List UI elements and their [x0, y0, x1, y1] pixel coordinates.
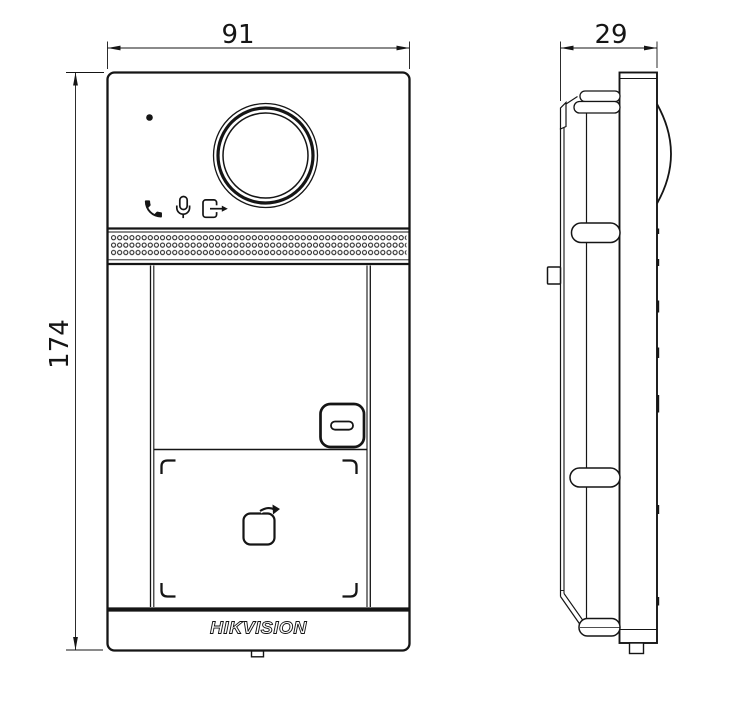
top-wedge	[561, 103, 567, 130]
brand-logo: HIKVISION	[210, 618, 307, 638]
dimension-drawing-page: HIKVISION	[0, 0, 748, 712]
lower-clip	[570, 468, 620, 487]
dimension-height: 174	[45, 73, 104, 651]
call-button	[321, 404, 365, 447]
height-dimension-label: 174	[45, 319, 75, 369]
bottom-tab	[252, 651, 264, 657]
arrowhead	[73, 637, 78, 650]
arrowhead	[397, 46, 410, 51]
middle-clip	[572, 223, 621, 243]
rear-box	[548, 91, 621, 636]
side-front-plate	[620, 73, 658, 644]
front-view: HIKVISION	[108, 73, 410, 657]
arrowhead	[108, 46, 121, 51]
lens-dome	[657, 104, 671, 204]
top-clip	[580, 91, 620, 102]
device-front-outline	[108, 73, 410, 651]
arrowhead	[73, 73, 78, 86]
width-dimension-label: 91	[221, 20, 254, 50]
left-tab	[548, 267, 561, 284]
side-bottom-tab	[630, 643, 644, 654]
status-led	[146, 114, 153, 121]
top-clip-lip	[574, 102, 620, 114]
dimension-width: 91	[108, 20, 410, 69]
technical-drawing: HIKVISION	[0, 0, 748, 712]
arrowhead	[644, 46, 657, 51]
depth-dimension-label: 29	[594, 20, 627, 50]
arrowhead	[561, 46, 574, 51]
side-view	[548, 73, 672, 654]
